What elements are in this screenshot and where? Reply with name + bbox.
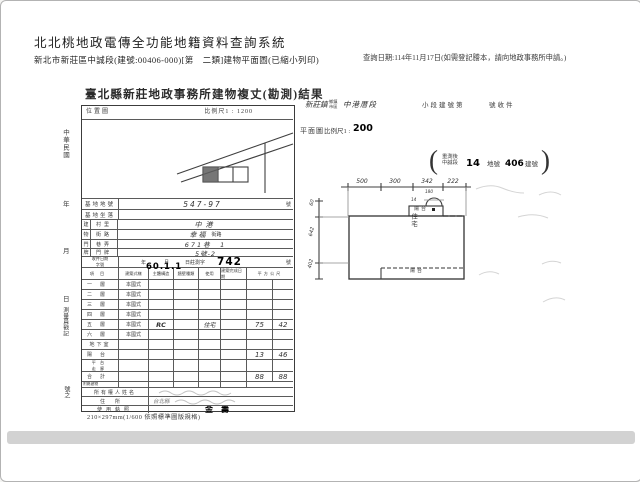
location-map-sketch: [82, 119, 293, 198]
floor-area-int: 75: [247, 320, 273, 329]
form-rows: 基地地號 547-97 號 基地坐落 建 村里 中港 物 街路 幸福 街路: [82, 198, 293, 413]
door-mark: [432, 208, 435, 211]
floor-area-int: 13: [247, 350, 273, 359]
floor-area-dec: 42: [273, 320, 293, 329]
query-date-note: 查詢日期:114年11月17日(如需登記謄本，請向地政事務所申請。): [363, 54, 566, 62]
floor-label: 地下室: [82, 340, 119, 349]
system-title: 北北桃地政電傳全功能地籍資料查詢系統: [34, 36, 286, 50]
total-row: 合計 88 88: [82, 371, 293, 381]
receipt-label-line2: 字號: [96, 262, 104, 267]
document-subtitle: 新北市新莊區中誠段(建號:00406-000)[第 二類]建物平面圖(已縮小列印…: [34, 56, 319, 66]
village-value: 中港: [118, 220, 293, 229]
note-building-number: 406: [505, 159, 524, 169]
dim-top-1: 500: [352, 179, 372, 186]
door-group-char: 門: [82, 240, 91, 248]
receipt-day-prefix: 日莊測字: [185, 259, 205, 266]
lot-number-value: 547-97: [119, 199, 286, 209]
header-style: 建築式樣: [119, 268, 149, 279]
address-value: 台北縣: [153, 397, 170, 405]
dim-top-3: 342: [417, 179, 437, 186]
total-label: 合計: [82, 372, 119, 381]
note-building-label: 建號: [525, 161, 538, 168]
header-use: 使用: [199, 268, 221, 279]
location-map-scale: 比例尺1 : 1200: [204, 109, 253, 116]
floor-style: 本國式: [119, 320, 149, 329]
margin-era-label: 中華民國: [61, 129, 68, 159]
floor-row-6: 六層 本國式: [82, 329, 293, 339]
floor-label: 六層: [82, 330, 119, 339]
lot-situs-row: 基地坐落: [82, 209, 293, 219]
town-unit-label: 鄉鎮 市區: [329, 100, 337, 110]
resurvey-note: 重測後 中誠段: [442, 154, 458, 166]
receipt-suffix: 號: [286, 259, 291, 266]
note-line2: 中誠段: [442, 160, 458, 166]
door-lane-row: 門 巷弄 671巷 1: [82, 239, 293, 248]
floor-label: 三層: [82, 300, 119, 309]
floor-row-2: 二層 本國式: [82, 289, 293, 299]
note-close-paren: ): [541, 145, 550, 176]
door-number-value: 5號-2: [118, 249, 293, 256]
header-item: 項目: [82, 268, 119, 279]
dim-mini-180: 180: [425, 190, 433, 195]
annex-row: 附屬建物: [82, 381, 293, 387]
scan-title: 臺北縣新莊地政事務所建物複丈(勘測)結果: [85, 89, 324, 102]
floor-row-platform: 平台 走廊: [82, 359, 293, 371]
village-label: 村里: [91, 220, 118, 229]
door-street-row: 物 街路 幸福 街路: [82, 229, 293, 239]
door-village-row: 建 村里 中港: [82, 219, 293, 229]
lane-label: 巷弄: [91, 240, 118, 248]
door-group-char: 物: [82, 230, 91, 239]
owner-row: 所有權人姓名: [82, 387, 293, 396]
floor-label: 陽台: [82, 350, 119, 359]
balcony-bottom-label: 陽台: [410, 269, 424, 275]
receipt-row: 收件日期 字號 年 月 日莊測字 742 號: [82, 256, 293, 267]
survey-form: 位置圖 比例尺1 : 1200 基地地號 547-97 號 基地坐落: [81, 105, 295, 412]
floor-row-basement: 地下室: [82, 339, 293, 349]
dim-top-2: 300: [385, 179, 405, 186]
floor-plan-drawing: [296, 176, 568, 334]
lot-situs-label: 基地坐落: [82, 210, 119, 219]
floor-label: 一層: [82, 280, 119, 289]
floor-use: 住宅: [199, 320, 221, 329]
unit-use-label: 住宅: [409, 213, 416, 228]
floor-label: 二層: [82, 290, 119, 299]
floor-style: 本國式: [119, 330, 149, 339]
plan-title: 平面圖: [300, 127, 324, 135]
subsection-label: 小段建號第: [422, 102, 465, 109]
street-value: 幸福: [189, 230, 207, 239]
dim-top-4: 222: [443, 179, 463, 186]
plan-scale-value: 200: [353, 124, 373, 135]
margin-tail-label: 號之: [62, 386, 69, 398]
margin-day-label: 日: [63, 296, 70, 303]
total-area-dec: 88: [273, 372, 293, 381]
town-value: 新莊鎮: [305, 101, 328, 110]
floor-row-5: 五層 本國式 RC 住宅 75 42: [82, 319, 293, 329]
plan-scale-prefix: 比例尺1 :: [324, 128, 350, 135]
lot-number-row: 基地地號 547-97 號: [82, 198, 293, 209]
note-open-paren: (: [429, 145, 438, 176]
handwritten-owner-name: [157, 388, 247, 396]
street-suffix: 街路: [211, 231, 221, 238]
lot-number-suffix: 號: [286, 199, 293, 209]
note-lot-number: 14: [466, 158, 480, 170]
floor-label: 五層: [82, 320, 119, 329]
town-unit-line2: 市區: [329, 105, 337, 110]
receipt-number-stamp: 742: [217, 257, 242, 267]
total-area-int: 88: [247, 372, 273, 381]
door-number-row: 牌 門牌 5號-2: [82, 248, 293, 256]
header-area: 平方公尺: [247, 268, 293, 279]
floor-row-1: 一層 本國式: [82, 279, 293, 289]
margin-year-label: 年: [63, 201, 70, 208]
subject-parcel-mark: [203, 167, 218, 182]
door-group-char: 建: [82, 220, 91, 229]
floor-style: 本國式: [119, 310, 149, 319]
margin-month-label: 月: [63, 248, 70, 255]
lane-value: 671巷 1: [118, 240, 293, 248]
license-row: 使用執照 金壽: [82, 405, 293, 413]
handwritten-address: [173, 397, 253, 405]
license-stamp: 金壽: [149, 406, 293, 413]
license-label: 使用執照: [82, 406, 149, 413]
owner-label: 所有權人姓名: [82, 388, 149, 396]
floor-style: 本國式: [119, 280, 149, 289]
floor-row-4: 四層 本國式: [82, 309, 293, 319]
header-completion-date: 建築完成日期: [221, 268, 247, 279]
land-registry-viewer-window: 北北桃地政電傳全功能地籍資料查詢系統 新北市新莊區中誠段(建號:00406-00…: [0, 0, 640, 482]
dim-mini-14: 14: [411, 198, 416, 203]
floor-structure: RC: [149, 320, 174, 329]
margin-surveyor-stamp-label: 測量員戳記: [61, 307, 68, 336]
address-label: 住所: [82, 397, 149, 405]
floor-label: 四層: [82, 310, 119, 319]
corridor-label: 走廊: [92, 366, 108, 372]
balcony-top-label: 陽台: [414, 207, 428, 213]
note-lot-label: 地號: [487, 161, 500, 168]
floor-style: 本國式: [119, 290, 149, 299]
location-map-header: 位置圖 比例尺1 : 1200: [82, 106, 293, 120]
completion-date-stamp: 60.1.1: [146, 263, 182, 273]
floor-row-3: 三層 本國式: [82, 299, 293, 309]
address-row: 住所 台北縣: [82, 396, 293, 405]
scan-edge-shadow: [7, 431, 635, 444]
location-map-label: 位置圖: [86, 109, 110, 116]
door-group-char: 牌: [82, 249, 91, 256]
floor-area-dec: 46: [273, 350, 293, 359]
form-caption: 210×297mm(1/600 依照標準圖版規格): [87, 414, 200, 421]
street-label: 街路: [91, 230, 118, 239]
section-value: 中港厝段: [343, 101, 377, 110]
floor-style: 本國式: [119, 300, 149, 309]
floor-table-header: 項目 建築式樣 主體構造 牆壁種類 使用 建築完成日期 平方公尺: [82, 267, 293, 279]
door-number-label: 門牌: [91, 249, 118, 256]
floor-row-balcony: 陽台 13 46: [82, 349, 293, 359]
annex-label: 附屬建物: [83, 382, 98, 387]
receipt-suffix-label: 號收件: [489, 102, 515, 109]
lot-number-label: 基地地號: [82, 199, 119, 209]
